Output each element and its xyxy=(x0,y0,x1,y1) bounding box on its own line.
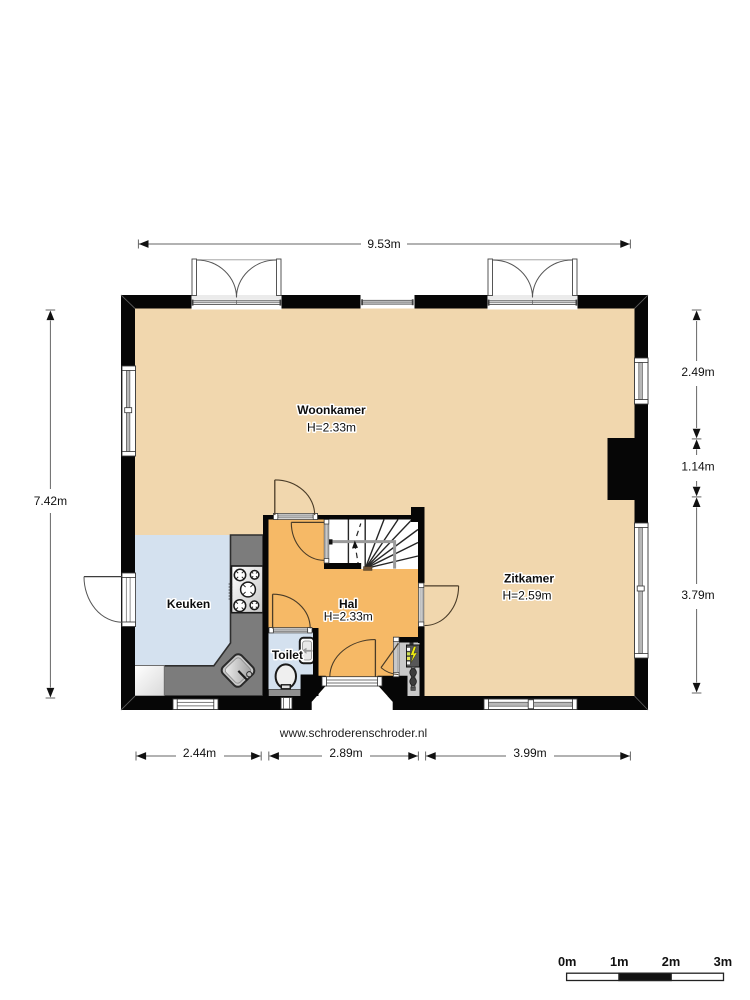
svg-text:1.14m: 1.14m xyxy=(681,459,714,473)
svg-text:www.schroderenschroder.nl: www.schroderenschroder.nl xyxy=(279,726,427,740)
svg-text:9.53m: 9.53m xyxy=(367,237,400,251)
svg-text:H=2.33m: H=2.33m xyxy=(307,421,356,435)
svg-text:Toilet: Toilet xyxy=(272,648,303,662)
svg-text:H=2.59m: H=2.59m xyxy=(502,589,551,603)
svg-text:1m: 1m xyxy=(610,954,629,969)
svg-text:Zitkamer: Zitkamer xyxy=(504,572,554,586)
svg-text:2.44m: 2.44m xyxy=(183,746,216,760)
svg-text:0m: 0m xyxy=(558,954,577,969)
svg-text:2.89m: 2.89m xyxy=(329,746,362,760)
svg-text:2m: 2m xyxy=(662,954,681,969)
svg-text:H=2.33m: H=2.33m xyxy=(324,609,373,623)
svg-text:3.79m: 3.79m xyxy=(681,588,714,602)
svg-text:3m: 3m xyxy=(714,954,733,969)
svg-text:3.99m: 3.99m xyxy=(513,746,546,760)
svg-text:Woonkamer: Woonkamer xyxy=(297,403,366,417)
svg-text:Keuken: Keuken xyxy=(167,597,210,611)
svg-text:7.42m: 7.42m xyxy=(34,494,67,508)
svg-text:2.49m: 2.49m xyxy=(681,365,714,379)
